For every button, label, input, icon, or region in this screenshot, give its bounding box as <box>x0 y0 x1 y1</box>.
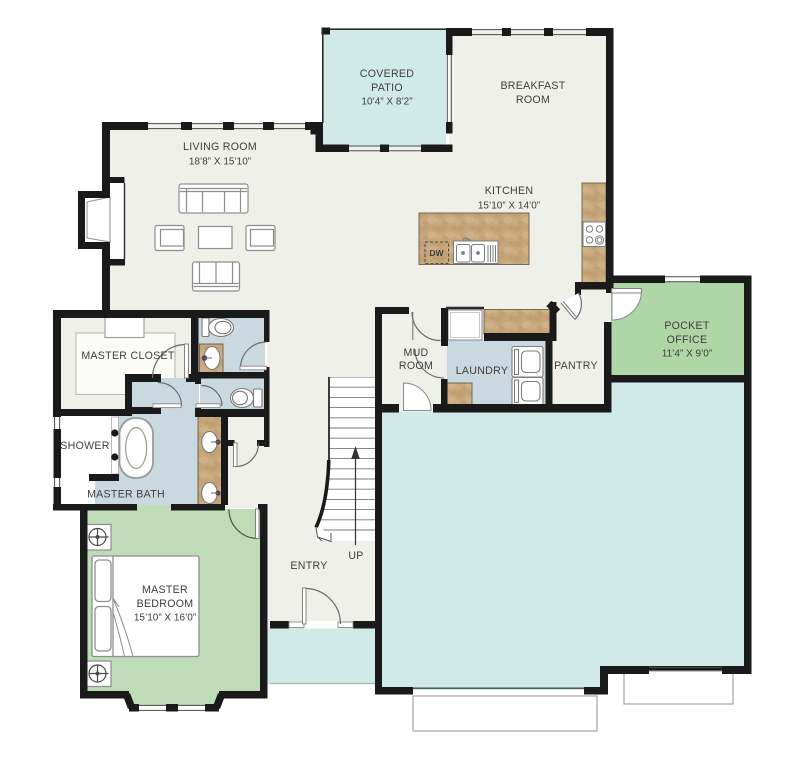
svg-text:15’10” X 14’0”: 15’10” X 14’0” <box>478 201 540 212</box>
svg-text:15’10” X 16’0”: 15’10” X 16’0” <box>134 613 196 624</box>
svg-text:MUD: MUD <box>403 347 428 359</box>
svg-text:PANTRY: PANTRY <box>554 360 598 372</box>
svg-text:LIVING ROOM: LIVING ROOM <box>183 141 257 153</box>
svg-text:OFFICE: OFFICE <box>667 334 708 346</box>
svg-text:LAUNDRY: LAUNDRY <box>456 365 509 377</box>
svg-text:PATIO: PATIO <box>371 82 403 94</box>
svg-text:COVERED: COVERED <box>360 68 415 80</box>
svg-text:18’8” X 15’10”: 18’8” X 15’10” <box>189 157 251 168</box>
svg-text:SHOWER: SHOWER <box>60 440 110 452</box>
svg-text:BREAKFAST: BREAKFAST <box>500 80 565 92</box>
svg-text:KITCHEN: KITCHEN <box>485 185 534 197</box>
svg-text:UP: UP <box>348 550 363 562</box>
svg-text:ROOM: ROOM <box>516 94 550 106</box>
svg-text:ENTRY: ENTRY <box>290 560 327 572</box>
svg-text:POCKET: POCKET <box>664 320 710 332</box>
svg-text:MASTER: MASTER <box>142 584 188 596</box>
svg-text:MASTER CLOSET: MASTER CLOSET <box>81 350 175 362</box>
svg-text:11’4” X 9’0”: 11’4” X 9’0” <box>662 349 712 360</box>
svg-text:10’4” X 8’2”: 10’4” X 8’2” <box>361 97 412 108</box>
svg-text:ROOM: ROOM <box>399 360 433 372</box>
svg-text:MASTER BATH: MASTER BATH <box>87 489 165 501</box>
svg-text:DW: DW <box>429 248 444 258</box>
svg-text:BEDROOM: BEDROOM <box>137 598 194 610</box>
